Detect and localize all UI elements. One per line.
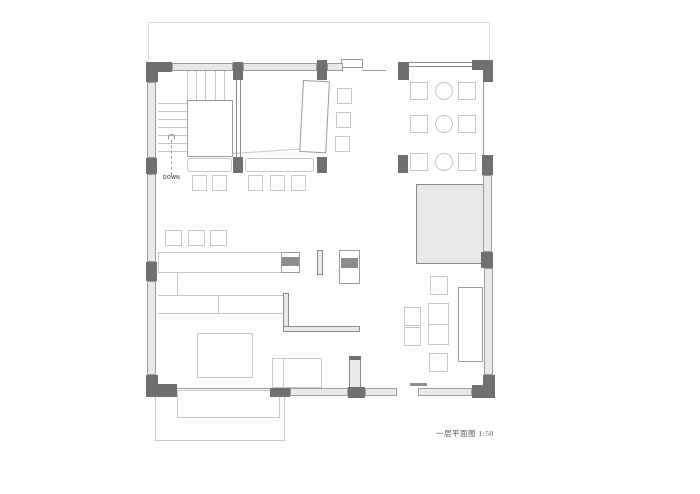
chair xyxy=(335,136,350,152)
stair-tread xyxy=(205,71,206,100)
window-segment xyxy=(365,388,397,396)
cooktop-band xyxy=(282,257,299,266)
window-segment xyxy=(243,63,317,71)
stair-down-label: DOWN xyxy=(163,175,180,181)
stair-arrow-line xyxy=(171,140,172,175)
chair xyxy=(336,112,351,128)
stub-wall-cap xyxy=(349,356,361,360)
door-track-line xyxy=(362,70,386,71)
l-wall xyxy=(283,326,360,332)
window-segment xyxy=(147,82,156,158)
elevator-shaft xyxy=(416,184,487,264)
chair xyxy=(192,175,207,191)
stool xyxy=(165,230,182,246)
wall-corner-br xyxy=(472,385,495,398)
chair xyxy=(212,175,227,191)
table xyxy=(197,333,253,378)
side-table xyxy=(404,307,421,326)
stair-landing xyxy=(187,100,233,157)
wall-pier xyxy=(398,62,409,80)
window-segment xyxy=(147,281,156,375)
stair-tread xyxy=(215,71,216,100)
long-table xyxy=(299,80,330,153)
chair xyxy=(270,175,285,191)
stair-tread xyxy=(158,119,187,120)
appliance-band xyxy=(341,258,358,268)
bench-seat xyxy=(245,158,314,172)
wall-corner-bl xyxy=(146,384,177,397)
dining-table-round xyxy=(435,82,453,100)
window-segment xyxy=(483,175,492,252)
wall-pier xyxy=(146,262,157,281)
door-leaf-mark xyxy=(410,383,427,386)
stair-tread xyxy=(158,127,187,128)
dining-table-square xyxy=(458,153,476,171)
door-mat-line xyxy=(283,358,284,388)
wall-corner-tr xyxy=(483,60,493,82)
door-mat xyxy=(272,358,322,388)
porch-steps xyxy=(177,390,280,418)
dining-table-square xyxy=(410,82,428,100)
sliding-door-leaf xyxy=(341,59,363,68)
coffee-table-line xyxy=(428,324,449,325)
side-table xyxy=(404,327,421,346)
cabinet-line xyxy=(177,273,178,296)
armchair xyxy=(429,353,448,372)
wall-pier xyxy=(317,60,327,80)
stair-tread xyxy=(224,71,225,100)
window-segment xyxy=(484,268,493,375)
wall-corner-tl xyxy=(146,62,158,82)
dining-table-square xyxy=(410,115,428,133)
wall-pier xyxy=(317,157,327,173)
wall-pier xyxy=(233,62,243,80)
window-segment xyxy=(327,63,343,71)
cabinet-line xyxy=(158,313,283,314)
wall-pier xyxy=(146,158,157,174)
stool xyxy=(210,230,227,246)
bench-seat xyxy=(187,158,232,172)
door-threshold-line xyxy=(177,388,270,389)
upper-floor-outline xyxy=(148,22,490,63)
wall-pier xyxy=(482,155,493,175)
glass-wall-line xyxy=(483,82,484,155)
stair-tread xyxy=(158,151,187,152)
stub-wall xyxy=(349,358,361,389)
drawing-title: 一层平面图 1:50 xyxy=(436,428,494,439)
dining-table-square xyxy=(410,153,428,171)
window-segment xyxy=(290,388,348,396)
thin-wall xyxy=(409,62,472,67)
stair-tread xyxy=(158,111,187,112)
cabinet-line xyxy=(218,295,219,314)
counter-panel xyxy=(317,250,323,275)
stair-tread xyxy=(158,103,187,104)
wall-pier xyxy=(348,387,365,398)
wall-pier xyxy=(481,252,493,268)
dining-table-round xyxy=(435,115,453,133)
stair-tread xyxy=(196,71,197,100)
dining-table-square xyxy=(458,115,476,133)
chair xyxy=(337,88,352,104)
dining-table-square xyxy=(458,82,476,100)
wall-segment xyxy=(270,388,290,397)
kitchen-counter xyxy=(158,252,300,273)
window-segment xyxy=(418,388,472,396)
floor-plan: DOWN xyxy=(0,0,700,494)
stair-tread xyxy=(158,143,187,144)
stool xyxy=(188,230,205,246)
wall-pier xyxy=(233,157,243,173)
stair-arrow-start xyxy=(168,134,175,139)
stair-side-wall xyxy=(236,80,241,157)
armchair xyxy=(430,276,448,295)
chair xyxy=(291,175,306,191)
chair xyxy=(248,175,263,191)
dining-table-round xyxy=(435,153,453,171)
window-segment xyxy=(147,174,156,262)
sofa xyxy=(458,287,483,362)
wall-pier xyxy=(398,155,408,173)
stair-tread xyxy=(187,71,188,100)
window-segment xyxy=(172,63,233,71)
